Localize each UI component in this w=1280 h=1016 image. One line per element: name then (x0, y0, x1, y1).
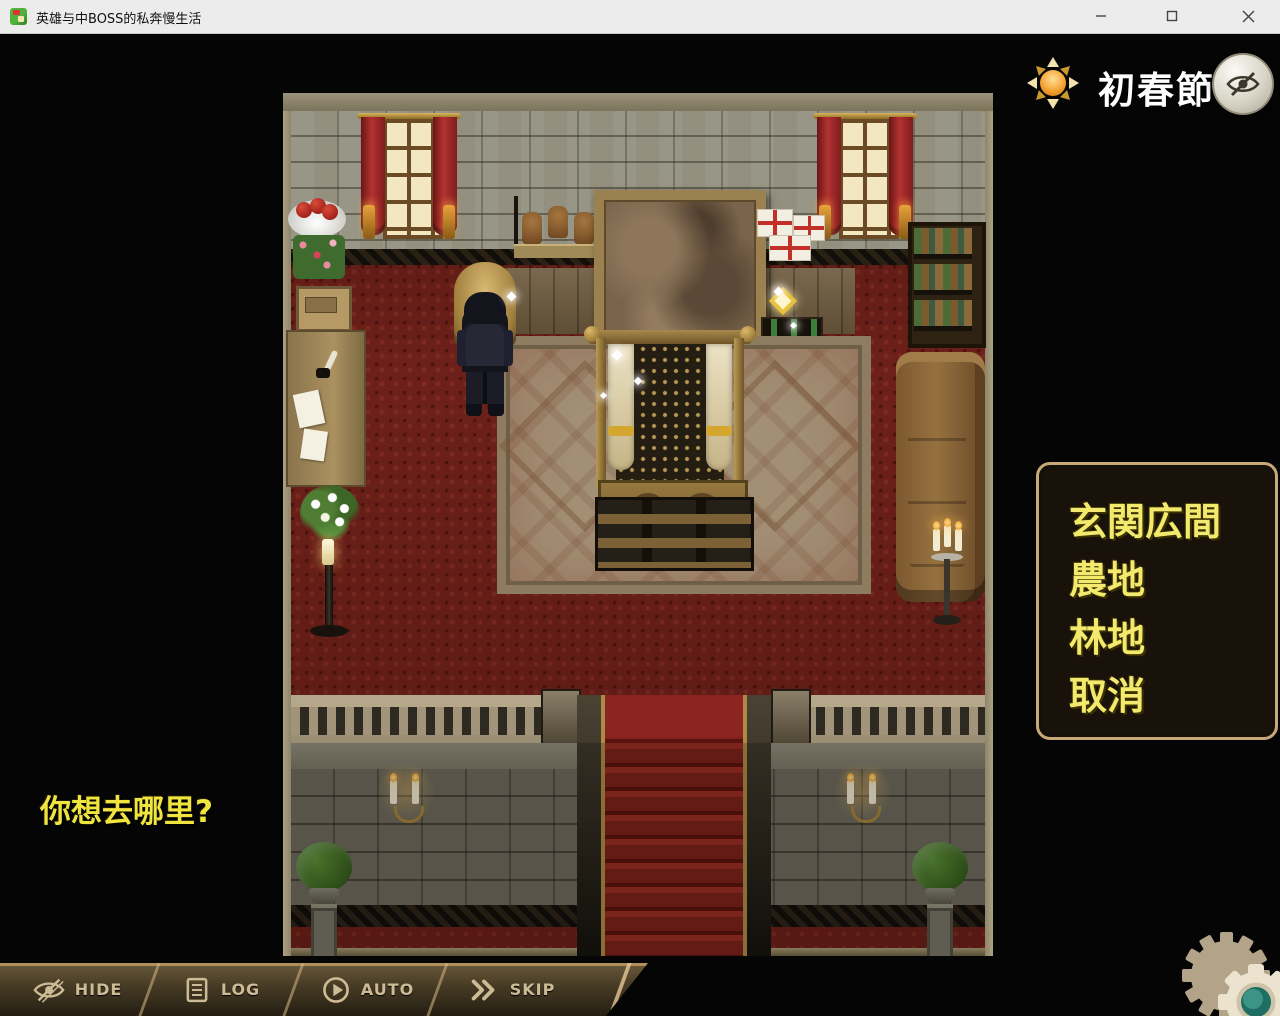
log-button-label: LOG (221, 980, 260, 999)
eye-off-icon (1225, 66, 1261, 102)
bed-drape (706, 344, 732, 470)
bed-canopy (588, 330, 752, 344)
bar-divider (282, 963, 304, 1016)
window-left (363, 113, 455, 249)
season-label: 初春節 (1098, 60, 1215, 114)
log-icon (182, 975, 212, 1005)
gift-box (769, 235, 811, 261)
app-icon (10, 8, 27, 25)
log-button[interactable]: LOG (162, 963, 280, 1016)
candle (847, 780, 854, 804)
stand-base (310, 625, 348, 637)
drape-tie (706, 426, 732, 436)
plant-pedestal (927, 904, 953, 956)
candle (412, 780, 419, 804)
bar-edge (608, 963, 631, 1016)
sun-icon (1026, 56, 1080, 110)
dialogue-prompt: 你想去哪里? (40, 786, 213, 831)
flower-stand (298, 485, 362, 655)
season-sun-icon (1026, 56, 1080, 110)
drape-tie (608, 426, 634, 436)
hide-button-label: HIDE (75, 980, 123, 999)
candle (322, 539, 334, 565)
pot-shelf (514, 196, 604, 258)
character-boot (466, 404, 482, 416)
skip-button[interactable]: SKIP (450, 963, 572, 1016)
auto-button[interactable]: AUTO (306, 963, 428, 1016)
auto-button-label: AUTO (361, 980, 414, 999)
flame (955, 521, 962, 530)
clay-pot (574, 212, 594, 244)
candle (390, 780, 397, 804)
choice-item-farmland[interactable]: 農地 (1069, 551, 1275, 609)
candle (944, 525, 951, 547)
wooden-sign (296, 286, 352, 332)
character-boot (488, 404, 504, 416)
gift-box (757, 209, 793, 237)
eye-off-icon (32, 973, 66, 1007)
plant-foliage (296, 842, 352, 892)
candelabra-base (933, 615, 961, 625)
shelf-board (514, 244, 604, 258)
bookshelf (908, 222, 986, 348)
close-icon (1242, 10, 1255, 23)
paper (293, 390, 326, 429)
character-body (462, 324, 508, 372)
plant-foliage (912, 842, 968, 892)
maximize-button[interactable] (1148, 0, 1195, 32)
minimize-icon (1095, 10, 1107, 22)
storage-chest (595, 497, 754, 571)
skip-button-label: SKIP (510, 980, 556, 999)
bed-drape (608, 344, 634, 470)
plant-pedestal (311, 904, 337, 956)
flame (390, 773, 397, 782)
staircase (577, 695, 771, 956)
wall-sconce (386, 770, 426, 834)
flame (933, 521, 940, 530)
apple (322, 204, 338, 220)
player-character (450, 262, 520, 420)
candelabra (927, 523, 967, 633)
candle (955, 529, 962, 551)
clay-pot (522, 212, 542, 244)
choice-item-entrance-hall[interactable]: 玄関広間 (1069, 493, 1275, 551)
book-row (914, 264, 972, 295)
minimize-button[interactable] (1077, 0, 1124, 32)
skip-icon (467, 973, 501, 1007)
flower-planter (293, 235, 345, 279)
white-bouquet (300, 485, 360, 541)
stair-rail (747, 695, 771, 956)
choice-item-woodland[interactable]: 林地 (1069, 609, 1275, 667)
balustrade (291, 695, 541, 745)
book-row (914, 228, 972, 259)
character-legs (466, 372, 504, 404)
bar-divider (138, 963, 160, 1016)
book-row (914, 300, 972, 331)
torch-sconce (443, 205, 455, 239)
balustrade (807, 695, 985, 745)
character-arm (457, 330, 466, 366)
gear-icon (1182, 928, 1280, 1016)
paper (300, 428, 328, 461)
flame (869, 773, 876, 782)
writing-desk (286, 330, 366, 487)
potted-plant (912, 842, 968, 956)
stand-pole (325, 565, 333, 627)
candelabra-pole (944, 559, 950, 615)
potted-plant (296, 842, 352, 956)
stair-rail (577, 695, 601, 956)
wall-sconce (843, 770, 883, 834)
flame (944, 518, 951, 527)
wall-top-edge (283, 93, 993, 113)
settings-gear-button[interactable] (1182, 928, 1280, 1016)
flame (847, 773, 854, 782)
flame (412, 773, 419, 782)
stair-landing (601, 695, 747, 737)
window-title: 英雄与中BOSS的私奔慢生活 (36, 8, 201, 27)
fruit-plate (288, 200, 346, 238)
candle (933, 529, 940, 551)
title-bar: 英雄与中BOSS的私奔慢生活 (0, 0, 1280, 34)
bed-post (596, 338, 606, 488)
plant-urn (925, 888, 955, 904)
clay-pot (548, 206, 568, 238)
maximize-icon (1166, 10, 1178, 22)
bar-divider (426, 963, 448, 1016)
plant-urn (309, 888, 339, 904)
candle (869, 780, 876, 804)
control-bar: HIDE LOG AUTO SKIP (0, 963, 648, 1016)
game-window: 英雄与中BOSS的私奔慢生活 (0, 0, 1280, 1016)
choice-item-cancel[interactable]: 取消 (1069, 667, 1275, 725)
game-map[interactable] (283, 93, 993, 956)
auto-play-icon (320, 974, 352, 1006)
bed-post (734, 338, 744, 488)
hide-button[interactable]: HIDE (16, 963, 138, 1016)
torch-sconce (363, 205, 375, 239)
choice-menu: 玄関広間 農地 林地 取消 (1036, 462, 1278, 740)
character-arm (504, 330, 513, 366)
inkpot (316, 368, 330, 378)
hide-ui-button[interactable] (1212, 53, 1274, 115)
close-button[interactable] (1225, 0, 1272, 32)
